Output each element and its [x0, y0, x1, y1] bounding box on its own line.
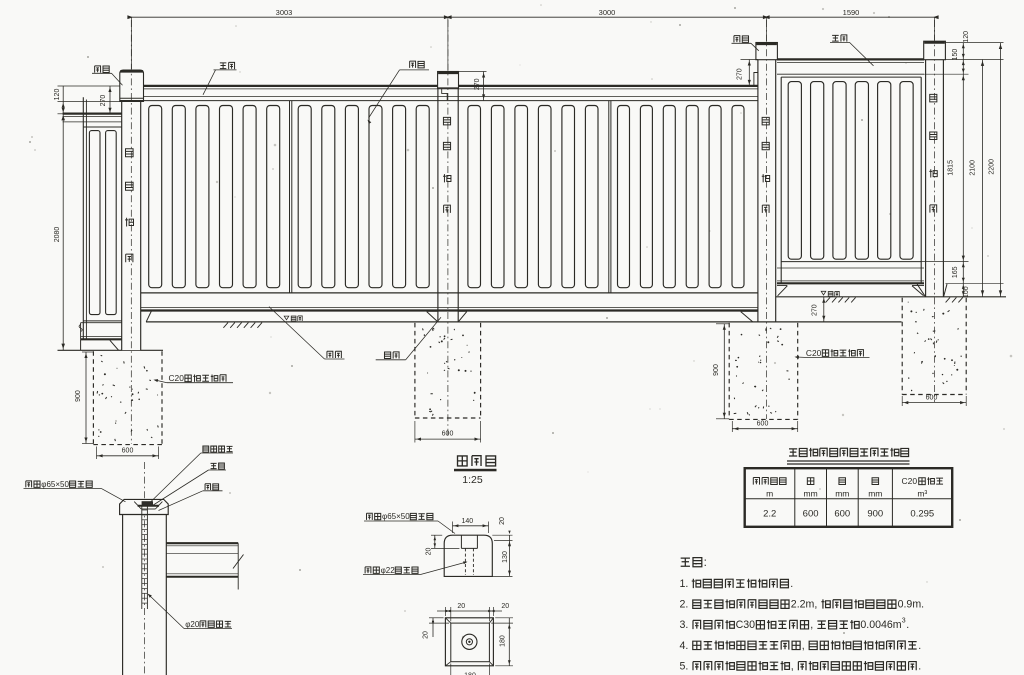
svg-text:φ20: φ20	[185, 620, 200, 629]
svg-text:,: ,	[791, 660, 794, 672]
svg-text:120: 120	[963, 31, 970, 43]
svg-text:600: 600	[926, 394, 938, 401]
svg-text:600: 600	[442, 430, 454, 437]
svg-text:2.2: 2.2	[763, 509, 776, 520]
svg-text:3.: 3.	[680, 619, 689, 631]
svg-text:900: 900	[75, 390, 82, 402]
svg-text:600: 600	[803, 509, 819, 520]
svg-text:1590: 1590	[843, 8, 860, 17]
svg-text:600: 600	[834, 509, 850, 520]
svg-text:,: ,	[810, 619, 813, 631]
svg-text:,: ,	[802, 640, 805, 652]
svg-text:0.9m.: 0.9m.	[898, 599, 925, 611]
svg-text:3000: 3000	[599, 8, 616, 17]
svg-text:2.: 2.	[680, 599, 689, 611]
svg-text:1.: 1.	[680, 578, 689, 590]
svg-text:1:25: 1:25	[462, 474, 483, 486]
svg-text:20: 20	[425, 548, 432, 556]
svg-text:C20: C20	[902, 476, 918, 486]
svg-text::: :	[704, 556, 707, 569]
svg-text:140: 140	[461, 518, 473, 525]
svg-text:.: .	[790, 578, 793, 590]
svg-text:270: 270	[474, 78, 481, 90]
svg-text:20: 20	[501, 603, 509, 610]
svg-text:270: 270	[100, 95, 107, 107]
svg-text:0.295: 0.295	[910, 509, 934, 520]
svg-text:20: 20	[457, 603, 465, 610]
svg-text:C20: C20	[169, 373, 185, 383]
svg-text:2.2m,: 2.2m,	[791, 599, 818, 611]
svg-text:φ65×50: φ65×50	[41, 480, 69, 489]
svg-text:φ65×50: φ65×50	[382, 512, 410, 521]
svg-text:900: 900	[867, 509, 883, 520]
svg-text:m: m	[766, 489, 773, 499]
svg-text:3: 3	[902, 618, 906, 625]
svg-text:900: 900	[713, 364, 720, 376]
svg-text:120: 120	[54, 89, 61, 101]
svg-text:20: 20	[423, 631, 430, 639]
svg-text:4.: 4.	[680, 640, 689, 652]
svg-text:270: 270	[812, 304, 819, 316]
svg-text:2100: 2100	[970, 160, 977, 176]
svg-text:m³: m³	[917, 489, 927, 499]
svg-text:100: 100	[963, 286, 970, 298]
svg-text:130: 130	[502, 551, 509, 563]
svg-text:0.0046m: 0.0046m	[860, 619, 901, 631]
svg-text:165: 165	[952, 266, 959, 278]
svg-text:270: 270	[737, 68, 744, 80]
svg-text:2200: 2200	[989, 159, 996, 175]
svg-text:150: 150	[952, 49, 959, 61]
svg-text:3003: 3003	[276, 8, 293, 17]
svg-text:mm: mm	[868, 489, 882, 499]
svg-text:mm: mm	[804, 489, 818, 499]
svg-text:.: .	[906, 619, 909, 631]
svg-text:5.: 5.	[680, 660, 689, 672]
svg-text:.: .	[918, 640, 921, 652]
svg-text:600: 600	[757, 421, 769, 428]
svg-text:φ22: φ22	[381, 566, 396, 575]
svg-text:180: 180	[499, 635, 506, 647]
svg-text:20: 20	[499, 517, 506, 525]
svg-text:600: 600	[122, 447, 134, 454]
svg-text:mm: mm	[835, 489, 849, 499]
svg-text:1815: 1815	[948, 160, 955, 176]
svg-text:2080: 2080	[54, 227, 61, 243]
svg-text:C20: C20	[806, 348, 822, 358]
svg-text:.: .	[918, 660, 921, 672]
svg-text:C30: C30	[736, 619, 756, 631]
